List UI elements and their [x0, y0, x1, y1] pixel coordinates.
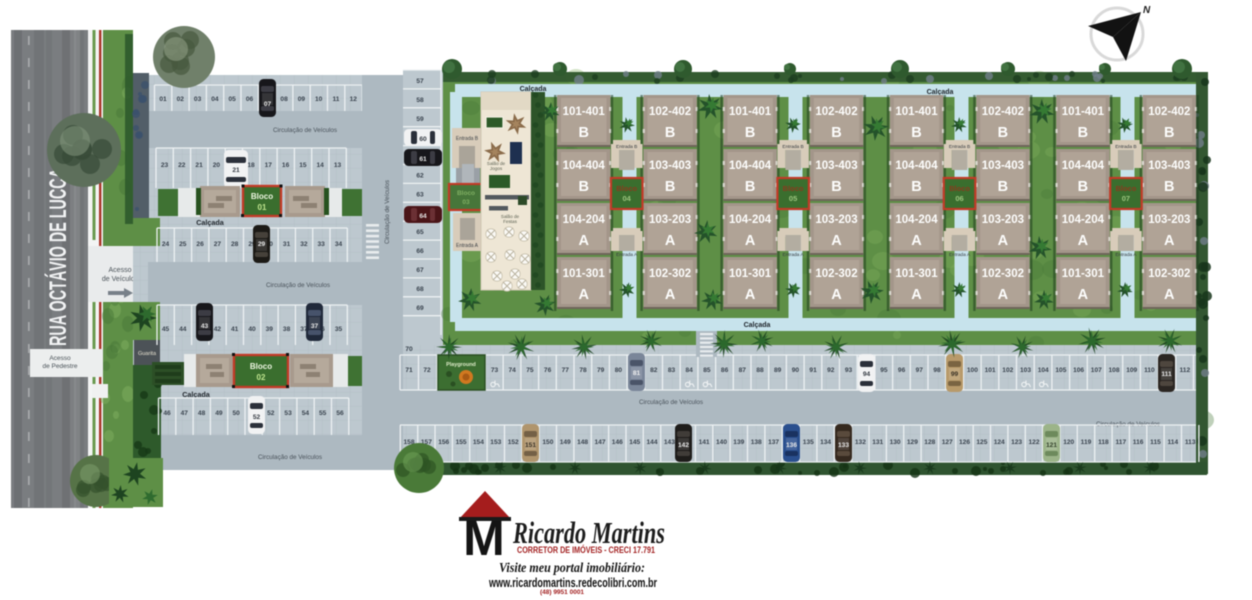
svg-text:RUA OCTÁVIO DE LUCCA: RUA OCTÁVIO DE LUCCA: [44, 168, 72, 346]
svg-text:B: B: [831, 125, 841, 141]
svg-text:15: 15: [299, 162, 307, 169]
svg-text:54: 54: [302, 410, 310, 417]
svg-text:B: B: [665, 179, 675, 195]
svg-text:67: 67: [416, 267, 424, 274]
svg-text:Circulação de Veículos: Circulação de Veículos: [639, 399, 703, 406]
svg-text:146: 146: [612, 439, 623, 446]
svg-text:33: 33: [318, 241, 326, 248]
svg-text:153: 153: [490, 439, 501, 446]
svg-text:47: 47: [181, 410, 189, 417]
svg-text:72: 72: [423, 367, 431, 374]
svg-text:101-401: 101-401: [1062, 106, 1105, 118]
svg-text:38: 38: [283, 326, 291, 333]
svg-text:24: 24: [162, 241, 170, 248]
svg-text:44: 44: [179, 326, 187, 333]
svg-text:125: 125: [976, 439, 987, 446]
svg-text:23: 23: [161, 162, 169, 169]
svg-text:Calçada: Calçada: [927, 89, 954, 96]
svg-text:13: 13: [334, 162, 342, 169]
svg-text:124: 124: [994, 439, 1005, 446]
svg-text:Bloco: Bloco: [251, 192, 273, 201]
svg-text:34: 34: [335, 241, 343, 248]
svg-text:127: 127: [942, 439, 953, 446]
svg-text:118: 118: [1098, 439, 1109, 446]
svg-text:119: 119: [1081, 439, 1092, 446]
svg-text:135: 135: [803, 439, 814, 446]
svg-text:Circulação de Veículos: Circulação de Veículos: [266, 282, 330, 289]
svg-text:03: 03: [462, 199, 470, 206]
svg-text:81: 81: [633, 370, 641, 377]
svg-text:62: 62: [416, 173, 424, 180]
svg-text:52: 52: [267, 410, 275, 417]
svg-text:105: 105: [1055, 367, 1066, 374]
svg-text:Bloco: Bloco: [949, 184, 970, 193]
svg-text:60: 60: [419, 136, 427, 143]
svg-text:A: A: [745, 287, 756, 303]
svg-text:Bloco: Bloco: [616, 184, 637, 193]
svg-text:53: 53: [284, 410, 292, 417]
svg-text:Bloco: Bloco: [457, 190, 475, 197]
svg-text:Calçada: Calçada: [196, 218, 225, 227]
svg-text:21: 21: [232, 167, 240, 174]
svg-text:103-203: 103-203: [982, 214, 1024, 226]
svg-text:101-301: 101-301: [563, 268, 606, 280]
svg-text:B: B: [665, 125, 675, 141]
svg-text:66: 66: [416, 248, 424, 255]
svg-text:104-204: 104-204: [1062, 214, 1105, 226]
svg-text:A: A: [998, 287, 1009, 303]
svg-text:B: B: [1078, 125, 1088, 141]
svg-text:46: 46: [163, 410, 171, 417]
svg-text:Circulação de Veículos: Circulação de Veículos: [273, 127, 337, 134]
svg-text:145: 145: [629, 439, 640, 446]
svg-text:08: 08: [280, 96, 288, 103]
svg-text:B: B: [998, 125, 1008, 141]
svg-text:82: 82: [650, 367, 658, 374]
svg-text:B: B: [911, 125, 921, 141]
svg-text:Entrada A: Entrada A: [949, 252, 971, 258]
svg-text:99: 99: [951, 371, 959, 378]
svg-text:104-204: 104-204: [895, 214, 938, 226]
svg-text:74: 74: [509, 367, 517, 374]
svg-text:25: 25: [179, 241, 187, 248]
svg-text:39: 39: [266, 326, 274, 333]
svg-text:Entrada A: Entrada A: [616, 252, 638, 258]
svg-text:138: 138: [751, 439, 762, 446]
svg-text:Entrada A: Entrada A: [1115, 252, 1137, 258]
svg-text:104: 104: [1038, 367, 1049, 374]
svg-text:151: 151: [525, 442, 536, 449]
svg-text:113: 113: [1185, 439, 1196, 446]
svg-text:140: 140: [716, 439, 727, 446]
svg-text:141: 141: [699, 439, 710, 446]
svg-text:de Pedestre: de Pedestre: [42, 363, 77, 370]
svg-text:14: 14: [317, 162, 325, 169]
svg-text:B: B: [911, 179, 921, 195]
svg-text:106: 106: [1073, 367, 1084, 374]
svg-text:114: 114: [1167, 439, 1178, 446]
svg-text:91: 91: [809, 367, 817, 374]
svg-text:101-401: 101-401: [563, 106, 606, 118]
svg-text:104-204: 104-204: [729, 214, 772, 226]
svg-text:A: A: [745, 233, 756, 249]
svg-text:55: 55: [319, 410, 327, 417]
svg-text:37: 37: [311, 323, 319, 330]
svg-text:www.ricardomartins.redecolibri: www.ricardomartins.redecolibri.com.br: [488, 576, 657, 590]
svg-text:132: 132: [855, 439, 866, 446]
svg-text:75: 75: [526, 367, 534, 374]
svg-text:104-404: 104-404: [895, 160, 938, 172]
svg-text:(48) 9951 0001: (48) 9951 0001: [540, 589, 584, 596]
svg-text:102-302: 102-302: [1148, 268, 1190, 280]
svg-text:102-402: 102-402: [1148, 106, 1190, 118]
svg-text:117: 117: [1115, 439, 1126, 446]
svg-text:148: 148: [577, 439, 588, 446]
svg-text:B: B: [745, 179, 755, 195]
svg-text:A: A: [911, 233, 922, 249]
svg-text:111: 111: [1161, 371, 1172, 378]
svg-text:126: 126: [959, 439, 970, 446]
svg-text:CORRETOR DE IMÓVEIS - CRECI 17: CORRETOR DE IMÓVEIS - CRECI 17.791: [517, 544, 655, 555]
svg-text:112: 112: [1179, 367, 1190, 374]
svg-text:A: A: [1164, 233, 1175, 249]
svg-text:152: 152: [508, 439, 519, 446]
svg-text:Calçada: Calçada: [744, 322, 771, 329]
svg-text:90: 90: [792, 367, 800, 374]
svg-text:48: 48: [198, 410, 206, 417]
svg-text:101-401: 101-401: [895, 106, 938, 118]
svg-text:121: 121: [1046, 442, 1057, 449]
svg-text:Bloco: Bloco: [1115, 184, 1136, 193]
svg-text:42: 42: [214, 326, 222, 333]
svg-text:Jogos: Jogos: [490, 166, 503, 171]
svg-text:49: 49: [215, 410, 223, 417]
svg-text:Circulação de Veículos: Circulação de Veículos: [384, 180, 391, 244]
svg-text:Acesso: Acesso: [109, 267, 132, 274]
svg-text:98: 98: [933, 367, 941, 374]
svg-text:16: 16: [282, 162, 290, 169]
svg-text:107: 107: [1091, 367, 1102, 374]
svg-text:B: B: [998, 179, 1008, 195]
svg-text:64: 64: [419, 213, 427, 220]
svg-text:29: 29: [258, 241, 266, 248]
svg-text:N: N: [1143, 5, 1151, 16]
svg-text:Entrada A: Entrada A: [783, 252, 805, 258]
svg-text:87: 87: [739, 367, 747, 374]
svg-text:80: 80: [615, 367, 623, 374]
svg-text:28: 28: [231, 241, 239, 248]
svg-text:96: 96: [898, 367, 906, 374]
svg-text:116: 116: [1133, 439, 1144, 446]
svg-text:Acesso: Acesso: [49, 355, 71, 362]
svg-text:102-302: 102-302: [982, 268, 1024, 280]
svg-text:70: 70: [405, 346, 413, 353]
svg-text:59: 59: [416, 116, 424, 123]
svg-text:21: 21: [195, 162, 203, 169]
svg-text:101: 101: [985, 367, 996, 374]
svg-text:A: A: [578, 287, 589, 303]
svg-text:131: 131: [872, 439, 883, 446]
svg-text:05: 05: [789, 194, 797, 203]
svg-text:B: B: [1078, 179, 1088, 195]
svg-text:52: 52: [253, 414, 261, 421]
svg-text:05: 05: [229, 96, 237, 103]
svg-text:102-402: 102-402: [982, 106, 1024, 118]
svg-text:40: 40: [248, 326, 256, 333]
svg-text:123: 123: [1011, 439, 1022, 446]
svg-text:65: 65: [416, 229, 424, 236]
svg-text:129: 129: [907, 439, 918, 446]
svg-text:76: 76: [544, 367, 552, 374]
svg-text:Entrada B: Entrada B: [1115, 144, 1136, 150]
svg-text:22: 22: [178, 162, 186, 169]
svg-text:79: 79: [597, 367, 605, 374]
svg-text:01: 01: [159, 96, 167, 103]
svg-text:104-404: 104-404: [1062, 160, 1105, 172]
svg-text:A: A: [831, 233, 842, 249]
svg-text:101-301: 101-301: [729, 268, 772, 280]
svg-text:A: A: [998, 233, 1009, 249]
svg-text:58: 58: [416, 97, 424, 104]
svg-text:32: 32: [300, 241, 308, 248]
svg-text:101-401: 101-401: [729, 106, 772, 118]
svg-text:Entrada A: Entrada A: [456, 243, 479, 249]
svg-text:144: 144: [646, 439, 657, 446]
svg-text:110: 110: [1144, 367, 1155, 374]
svg-text:100: 100: [967, 367, 978, 374]
svg-text:147: 147: [594, 439, 605, 446]
svg-text:137: 137: [768, 439, 779, 446]
svg-text:A: A: [665, 287, 676, 303]
svg-text:104-404: 104-404: [563, 160, 606, 172]
svg-text:84: 84: [686, 367, 694, 374]
svg-text:A: A: [1078, 287, 1089, 303]
svg-text:04: 04: [211, 96, 219, 103]
svg-text:92: 92: [827, 367, 835, 374]
svg-text:27: 27: [214, 241, 222, 248]
svg-text:104-204: 104-204: [563, 214, 606, 226]
svg-text:03: 03: [194, 96, 202, 103]
svg-text:108: 108: [1108, 367, 1119, 374]
svg-text:109: 109: [1126, 367, 1137, 374]
svg-text:68: 68: [416, 286, 424, 293]
svg-text:Guarita: Guarita: [138, 351, 157, 357]
svg-text:95: 95: [880, 367, 888, 374]
svg-text:17: 17: [265, 162, 273, 169]
svg-text:63: 63: [416, 191, 424, 198]
svg-text:77: 77: [562, 367, 570, 374]
svg-text:102-302: 102-302: [815, 268, 857, 280]
svg-text:97: 97: [916, 367, 924, 374]
svg-text:Entrada B: Entrada B: [782, 144, 803, 150]
svg-text:102-302: 102-302: [649, 268, 691, 280]
svg-text:102: 102: [1002, 367, 1013, 374]
svg-text:02: 02: [177, 96, 185, 103]
svg-text:56: 56: [336, 410, 344, 417]
svg-text:35: 35: [335, 326, 343, 333]
svg-text:A: A: [1164, 287, 1175, 303]
svg-text:A: A: [831, 287, 842, 303]
svg-text:103-203: 103-203: [815, 214, 857, 226]
svg-text:A: A: [665, 233, 676, 249]
svg-text:120: 120: [1063, 439, 1074, 446]
svg-text:B: B: [1164, 125, 1174, 141]
svg-text:18: 18: [247, 162, 255, 169]
svg-text:102-402: 102-402: [649, 106, 691, 118]
svg-text:139: 139: [733, 439, 744, 446]
svg-text:Bloco: Bloco: [250, 362, 272, 371]
svg-text:Playground: Playground: [446, 362, 476, 368]
svg-text:A: A: [578, 233, 589, 249]
svg-text:Circulação de Veículos: Circulação de Veículos: [258, 454, 322, 461]
svg-text:154: 154: [473, 439, 484, 446]
svg-text:104-404: 104-404: [729, 160, 772, 172]
svg-text:10: 10: [315, 96, 323, 103]
svg-text:93: 93: [845, 367, 853, 374]
svg-text:71: 71: [405, 367, 413, 374]
svg-text:103-403: 103-403: [815, 160, 857, 172]
svg-text:101-301: 101-301: [1062, 268, 1105, 280]
svg-text:128: 128: [924, 439, 935, 446]
svg-text:101-301: 101-301: [895, 268, 938, 280]
svg-text:Entrada B: Entrada B: [949, 144, 970, 150]
svg-text:73: 73: [491, 367, 499, 374]
svg-text:50: 50: [233, 410, 241, 417]
svg-text:26: 26: [196, 241, 204, 248]
svg-text:69: 69: [416, 305, 424, 312]
svg-text:09: 09: [298, 96, 306, 103]
svg-text:31: 31: [283, 241, 291, 248]
svg-text:Entrada B: Entrada B: [616, 144, 637, 150]
svg-text:86: 86: [721, 367, 729, 374]
svg-text:133: 133: [838, 442, 849, 449]
svg-text:136: 136: [786, 442, 797, 449]
svg-text:103-203: 103-203: [649, 214, 691, 226]
svg-text:06: 06: [955, 194, 963, 203]
svg-text:A: A: [911, 287, 922, 303]
svg-text:Festas: Festas: [503, 219, 517, 224]
svg-text:A: A: [1078, 233, 1089, 249]
svg-text:103-403: 103-403: [1148, 160, 1190, 172]
svg-text:01: 01: [258, 203, 267, 212]
svg-text:57: 57: [416, 78, 424, 85]
svg-text:89: 89: [774, 367, 782, 374]
svg-text:B: B: [831, 179, 841, 195]
svg-text:122: 122: [1028, 439, 1039, 446]
svg-text:12: 12: [350, 96, 358, 103]
svg-text:B: B: [578, 179, 588, 195]
svg-text:115: 115: [1150, 439, 1161, 446]
svg-text:88: 88: [756, 367, 764, 374]
svg-text:B: B: [745, 125, 755, 141]
svg-text:130: 130: [890, 439, 901, 446]
svg-text:07: 07: [1122, 194, 1130, 203]
svg-text:Bloco: Bloco: [783, 184, 804, 193]
svg-text:20: 20: [213, 162, 221, 169]
svg-text:94: 94: [863, 371, 871, 378]
svg-text:43: 43: [201, 323, 209, 330]
svg-text:142: 142: [678, 442, 689, 449]
svg-text:83: 83: [668, 367, 676, 374]
svg-text:07: 07: [264, 101, 272, 108]
svg-text:103-403: 103-403: [982, 160, 1024, 172]
svg-text:134: 134: [820, 439, 831, 446]
svg-text:11: 11: [333, 96, 340, 103]
svg-text:143: 143: [664, 439, 675, 446]
svg-text:149: 149: [560, 439, 571, 446]
svg-text:155: 155: [456, 439, 467, 446]
svg-text:156: 156: [438, 439, 449, 446]
svg-text:150: 150: [542, 439, 553, 446]
svg-text:Visite meu portal imobiliário:: Visite meu portal imobiliário:: [499, 561, 645, 576]
svg-text:04: 04: [623, 194, 632, 203]
svg-text:102-402: 102-402: [815, 106, 857, 118]
svg-text:78: 78: [579, 367, 587, 374]
svg-text:M: M: [463, 510, 505, 566]
svg-text:103-403: 103-403: [649, 160, 691, 172]
svg-text:103-203: 103-203: [1148, 214, 1190, 226]
svg-text:61: 61: [419, 156, 427, 163]
svg-text:103: 103: [1020, 367, 1031, 374]
svg-text:41: 41: [231, 326, 239, 333]
svg-text:B: B: [578, 125, 588, 141]
svg-text:Entrada B: Entrada B: [456, 136, 479, 142]
svg-text:02: 02: [257, 373, 266, 382]
svg-text:06: 06: [246, 96, 254, 103]
svg-text:85: 85: [703, 367, 711, 374]
svg-text:B: B: [1164, 179, 1174, 195]
svg-text:45: 45: [162, 326, 170, 333]
